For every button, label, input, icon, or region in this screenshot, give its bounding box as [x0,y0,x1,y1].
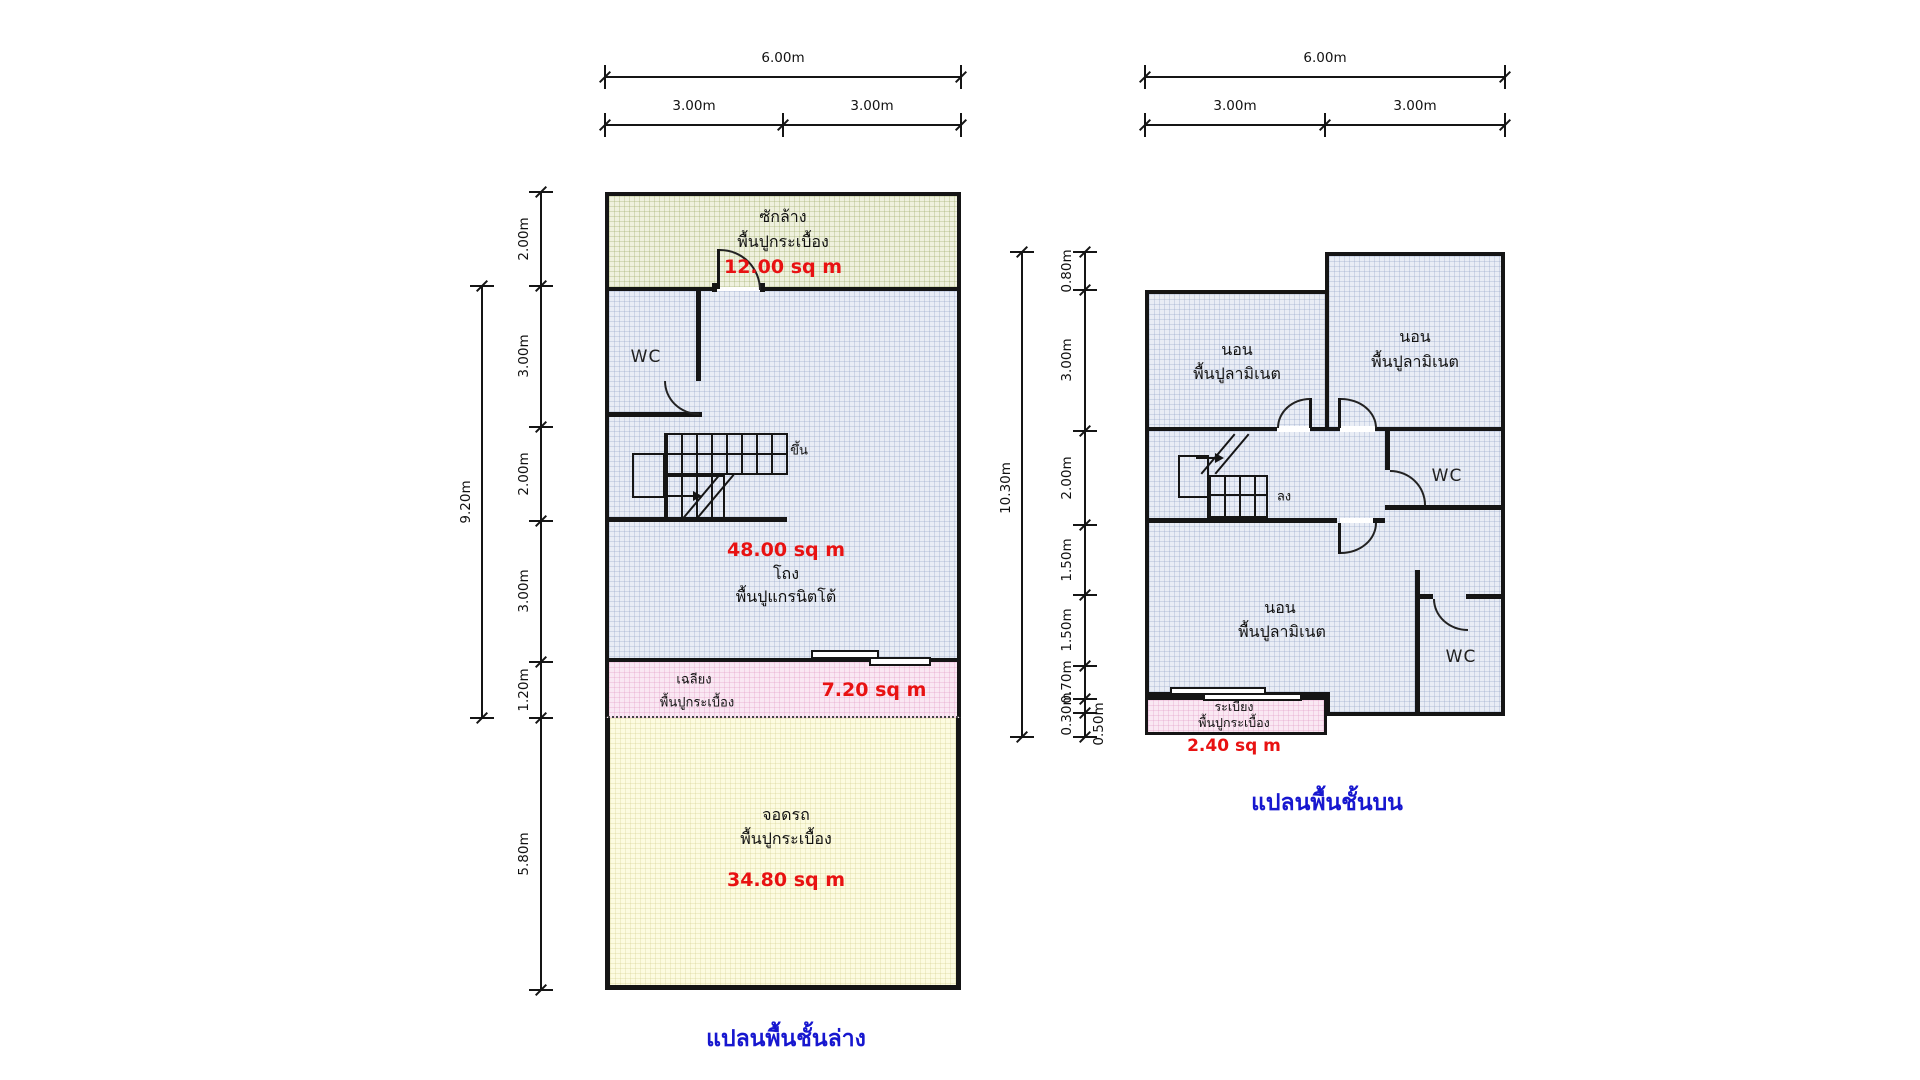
upper-floor-caption: แปลนพื้นชั้นบน [1251,790,1403,816]
porch-name-label: เฉลียง [676,674,711,689]
dim-tick [529,717,553,719]
bedroom-bottom-floor: พื้นปูลามิเนต [1238,623,1326,641]
stair-zone-bottom-wall [605,517,787,522]
wc-top-wall-vertical [1385,431,1390,470]
dim-tick [1144,65,1146,89]
stair-landing [632,453,665,498]
floor-plan-drawing: ซักล้าง พื้นปูกระเบื้อง 12.00 sq m WC ขึ… [0,0,1920,1080]
dim-seg-7-upper: 0.30m [1059,692,1075,735]
stair-up-label: ขึ้น [790,445,808,460]
carport-area-label: 34.80 sq m [727,870,845,892]
dim-tick [1324,113,1326,137]
stair-landing-upper [1178,455,1209,498]
balcony-name-label: ระเบียง [1214,700,1253,714]
bedroom-bottom-name: นอน [1264,599,1295,617]
wc-top-wall-bottom [1385,505,1501,510]
stair-direction-arrow-shaft [668,495,694,497]
balcony-area-label: 2.40 sq m [1187,737,1281,757]
dim-tick [1073,251,1097,253]
dim-width-left-upper: 3.00m [1213,99,1256,115]
dim-line [540,192,542,991]
bedroom-top-left-floor: พื้นปูลามิเนต [1193,365,1281,383]
porch-floor-label: พื้นปูกระเบื้อง [660,697,734,712]
wc-bottom-label: WC [1446,648,1477,668]
dim-total-width-upper: 6.00m [1303,51,1346,67]
hall-sliding-door-panel-2 [869,657,931,666]
wc-top-label: WC [1432,467,1463,487]
laundry-floor-label: พื้นปูกระเบื้อง [737,233,829,251]
stair-flight-upper [1207,475,1268,518]
carport-room [605,718,961,990]
dim-line [605,76,961,78]
stair-direction-arrow-head [693,491,702,501]
hall-area-label: 48.00 sq m [727,540,845,562]
dim-seg-2-lower: 3.00m [516,334,532,377]
dim-tick [529,285,553,287]
dim-seg-8-upper: 0.50m [1091,702,1107,745]
dim-tick [1073,289,1097,291]
dim-tick [604,65,606,89]
dim-tick [960,65,962,89]
dim-seg-2-upper: 3.00m [1059,338,1075,381]
dim-seg-4-upper: 1.50m [1059,538,1075,581]
bedroom-step-wall [1325,692,1330,716]
dim-tick [529,989,553,991]
wc-bottom-wall-top-a [1420,594,1433,599]
dim-width-right-upper: 3.00m [1393,99,1436,115]
carport-floor-label: พื้นปูกระเบื้อง [740,830,832,848]
dim-line [481,286,483,718]
dim-tick [1504,113,1506,137]
bedroom-top-right-name: นอน [1399,328,1430,346]
dim-seg-5-upper: 1.50m [1059,608,1075,651]
wc-partition-wall-vertical [696,291,701,381]
dim-total-width-lower: 6.00m [761,51,804,67]
dim-tick [782,113,784,137]
dim-tick [604,113,606,137]
dim-seg-1-upper: 0.80m [1059,249,1075,292]
dim-width-left-lower: 3.00m [672,99,715,115]
dim-tick [470,285,494,287]
dim-tick [1073,430,1097,432]
dim-seg-6-lower: 5.80m [516,832,532,875]
dim-tick [1073,594,1097,596]
dim-tick [1504,65,1506,89]
stair-arrow-head-upper [1215,453,1224,463]
dim-tick [1073,698,1097,700]
dim-tick [529,191,553,193]
dim-line [1145,76,1505,78]
dim-seg-3-lower: 2.00m [516,452,532,495]
stair-arrow-shaft-upper [1196,457,1216,459]
dim-tick [1073,524,1097,526]
dim-tick [1010,251,1034,253]
balcony-floor-label: พื้นปูกระเบื้อง [1198,716,1270,730]
dim-seg-3-upper: 2.00m [1059,456,1075,499]
dim-tick [960,113,962,137]
dim-seg-4-lower: 3.00m [516,569,532,612]
stair-mid-line-upper [1207,494,1268,496]
ground-floor-caption: แปลนพื้นชั้นล่าง [706,1026,866,1052]
dim-tick [529,520,553,522]
wc-bottom-wall-vertical [1415,570,1420,712]
wc-label: WC [631,348,662,368]
dim-tick [529,426,553,428]
bedroom-top-left-name: นอน [1221,341,1252,359]
laundry-area-label: 12.00 sq m [724,257,842,279]
stair-down-label: ลง [1277,491,1291,506]
dim-seg-5-lower: 1.20m [516,668,532,711]
dim-tick [529,661,553,663]
dim-tick [470,717,494,719]
dim-tick [1144,113,1146,137]
dim-overall-lower: 9.20m [458,480,474,523]
bedroom-top-right-floor: พื้นปูลามิเนต [1371,353,1459,371]
hall-name-label: โถง [773,565,799,583]
dim-tick [1010,736,1034,738]
dim-width-right-lower: 3.00m [850,99,893,115]
laundry-name-label: ซักล้าง [759,208,806,226]
dim-seg-1-lower: 2.00m [516,217,532,260]
carport-name-label: จอดรถ [762,806,810,824]
dim-overall-upper: 10.30m [998,462,1014,514]
stair-mid-line [664,453,788,455]
dim-tick [1073,665,1097,667]
wc-bottom-wall-top-b [1466,594,1501,599]
dim-line [1021,252,1023,737]
porch-area-label: 7.20 sq m [822,680,927,702]
hall-floor-label: พื้นปูแกรนิตโต้ [736,588,837,606]
stair-zone-bottom-wall-upper [1149,518,1337,523]
